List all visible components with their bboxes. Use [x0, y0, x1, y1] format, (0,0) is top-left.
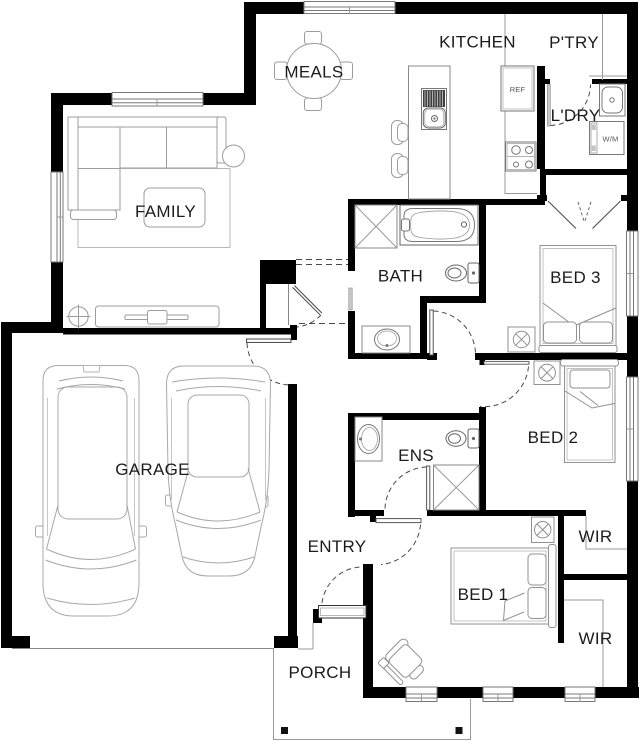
- svg-text:ENTRY: ENTRY: [308, 537, 367, 556]
- svg-text:FAMILY: FAMILY: [135, 202, 196, 221]
- svg-text:L'DRY: L'DRY: [551, 106, 601, 125]
- svg-text:BED 3: BED 3: [550, 268, 601, 287]
- svg-text:REF: REF: [510, 85, 526, 94]
- svg-text:PORCH: PORCH: [289, 663, 352, 682]
- svg-text:P'TRY: P'TRY: [549, 33, 599, 52]
- svg-text:BED 2: BED 2: [528, 428, 579, 447]
- svg-text:BATH: BATH: [378, 267, 423, 286]
- svg-text:WIR: WIR: [579, 527, 613, 546]
- svg-text:ENS: ENS: [398, 446, 434, 465]
- svg-text:BED 1: BED 1: [458, 585, 509, 604]
- svg-text:WIR: WIR: [579, 629, 613, 648]
- svg-text:W/M: W/M: [602, 135, 618, 144]
- svg-text:GARAGE: GARAGE: [115, 460, 190, 479]
- svg-text:KITCHEN: KITCHEN: [439, 33, 516, 52]
- svg-text:MEALS: MEALS: [284, 63, 343, 82]
